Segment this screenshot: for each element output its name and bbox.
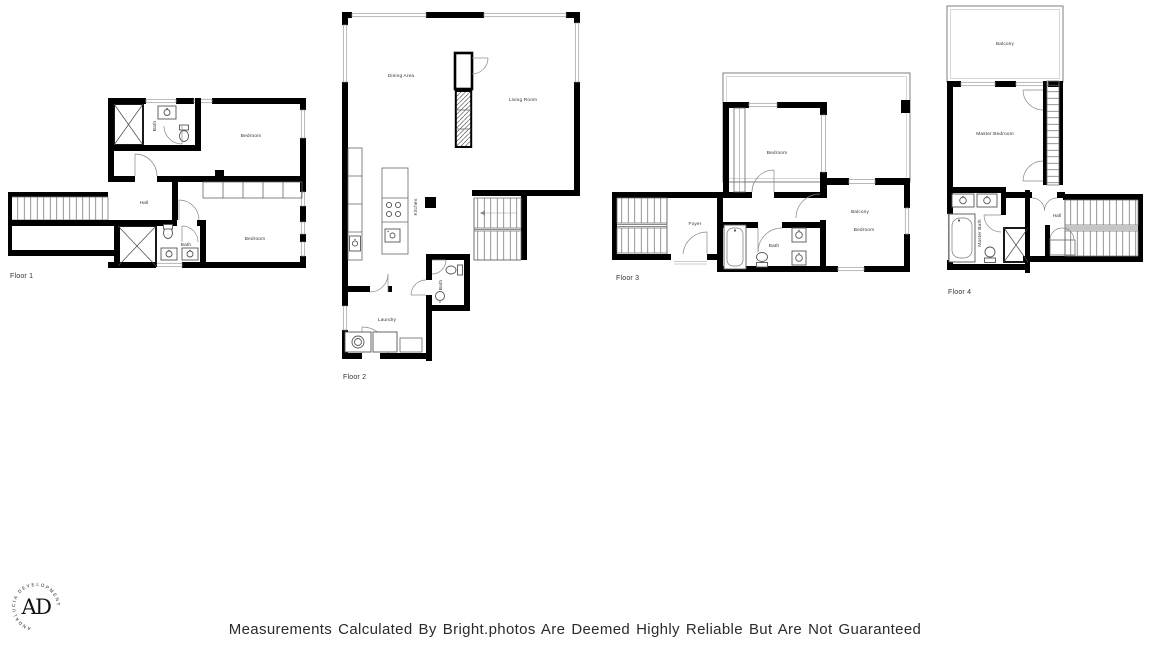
room-label-foyer: Foyer	[688, 221, 701, 227]
floor2-stairs	[474, 198, 521, 260]
room-label-bedroom-top: Bedroom	[241, 133, 262, 139]
floor1-stairs	[8, 192, 116, 256]
room-label-balcony: Balcony	[851, 209, 870, 215]
room-label-dining: Dining Area	[388, 73, 415, 79]
room-label-bath-upper: Bath	[152, 121, 158, 132]
floor2-kitchen-counter	[348, 148, 362, 260]
floor3-doors	[674, 170, 820, 264]
floor-3-label: Floor 3	[616, 275, 639, 282]
floor-4-plan: Balcony Master Bedroom Master Bath Hall …	[944, 4, 1146, 299]
room-label-bath-lower: Bath	[181, 242, 192, 248]
room-label-bedroom-top: Bedroom	[767, 150, 788, 156]
floor-2-plan: Dining Area Living Room Kitchen Bath Lau…	[338, 8, 584, 386]
room-label-master-bath: Master Bath	[977, 219, 983, 247]
floor4-bedroom-doors	[1023, 90, 1043, 181]
floor-3-plan: Bedroom Balcony Foyer Bath Bedroom Floor…	[612, 70, 914, 285]
floor3-balcony	[723, 73, 910, 182]
floor1-bath-upper-fixtures	[158, 106, 189, 144]
room-label-bath: Bath	[438, 280, 444, 291]
logo-monogram: AD	[20, 595, 51, 619]
room-label-master-bedroom: Master Bedroom	[976, 131, 1014, 137]
floor-1-plan: Bedroom Hall Bath Bath Bedroom Floor 1	[8, 96, 310, 286]
room-label-bath: Bath	[769, 243, 780, 249]
floor3-bath-fixtures	[724, 225, 806, 269]
floor1-doors	[135, 154, 199, 220]
floor2-laundry-fixtures	[345, 274, 422, 353]
floor2-bath-fixtures	[411, 260, 463, 303]
floor4-stairs	[1065, 200, 1138, 256]
floor-1-label: Floor 1	[10, 273, 33, 280]
floor3-bedroom-closet	[734, 108, 745, 192]
floor2-kitchen-island	[382, 168, 408, 254]
floor1-closet-upper	[114, 104, 143, 145]
disclaimer-text: Measurements Calculated By Bright.photos…	[0, 621, 1150, 638]
floor4-closet	[1004, 228, 1028, 262]
floor4-master-bath-fixtures	[949, 194, 1001, 263]
floor-4-label: Floor 4	[948, 289, 971, 296]
floor3-stairs	[617, 198, 667, 254]
floor2-stair-column	[455, 53, 488, 147]
room-label-bedroom-right: Bedroom	[854, 227, 875, 233]
floor2-fireplace	[425, 197, 436, 208]
room-label-hall: Hall	[140, 200, 149, 206]
room-label-kitchen: Kitchen	[413, 198, 419, 215]
floor1-walls	[108, 98, 306, 268]
floor1-wardrobe-row	[203, 182, 302, 198]
floor1-bath-lower-fixtures	[161, 225, 198, 261]
room-label-balcony: Balcony	[996, 41, 1015, 47]
room-label-living: Living Room	[509, 97, 537, 103]
floorplan-sheet: Bedroom Hall Bath Bath Bedroom Floor 1	[0, 0, 1150, 648]
room-label-laundry: Laundry	[378, 317, 397, 323]
floor1-closet-lower	[118, 226, 156, 266]
floor-2-label: Floor 2	[343, 374, 366, 381]
room-label-bedroom-bottom: Bedroom	[245, 236, 266, 242]
room-label-hall: Hall	[1053, 213, 1062, 219]
